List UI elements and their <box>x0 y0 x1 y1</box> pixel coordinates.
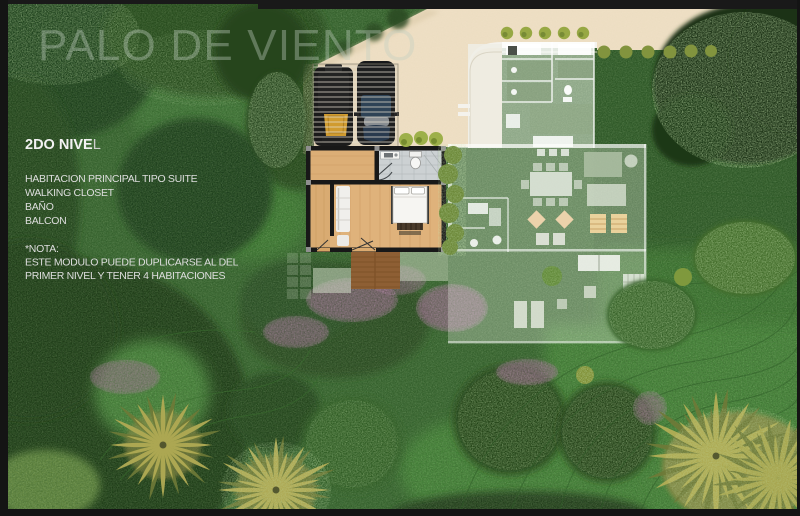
svg-text:2DO NIVEL: 2DO NIVEL <box>25 137 101 153</box>
svg-text:WALKING CLOSET: WALKING CLOSET <box>25 187 115 199</box>
svg-text:PALO DE VIENTO: PALO DE VIENTO <box>38 21 418 70</box>
svg-text:HABITACION PRINCIPAL TIPO SUIT: HABITACION PRINCIPAL TIPO SUITE <box>25 173 198 185</box>
svg-text:ESTE MODULO PUEDE DUPLICARSE A: ESTE MODULO PUEDE DUPLICARSE AL DEL <box>25 257 239 269</box>
svg-text:BALCON: BALCON <box>25 215 66 227</box>
svg-text:*NOTA:: *NOTA: <box>25 243 59 255</box>
svg-text:PRIMER NIVEL Y TENER 4 HABITAC: PRIMER NIVEL Y TENER 4 HABITACIONES <box>25 270 225 282</box>
svg-text:BAÑO: BAÑO <box>25 200 54 213</box>
